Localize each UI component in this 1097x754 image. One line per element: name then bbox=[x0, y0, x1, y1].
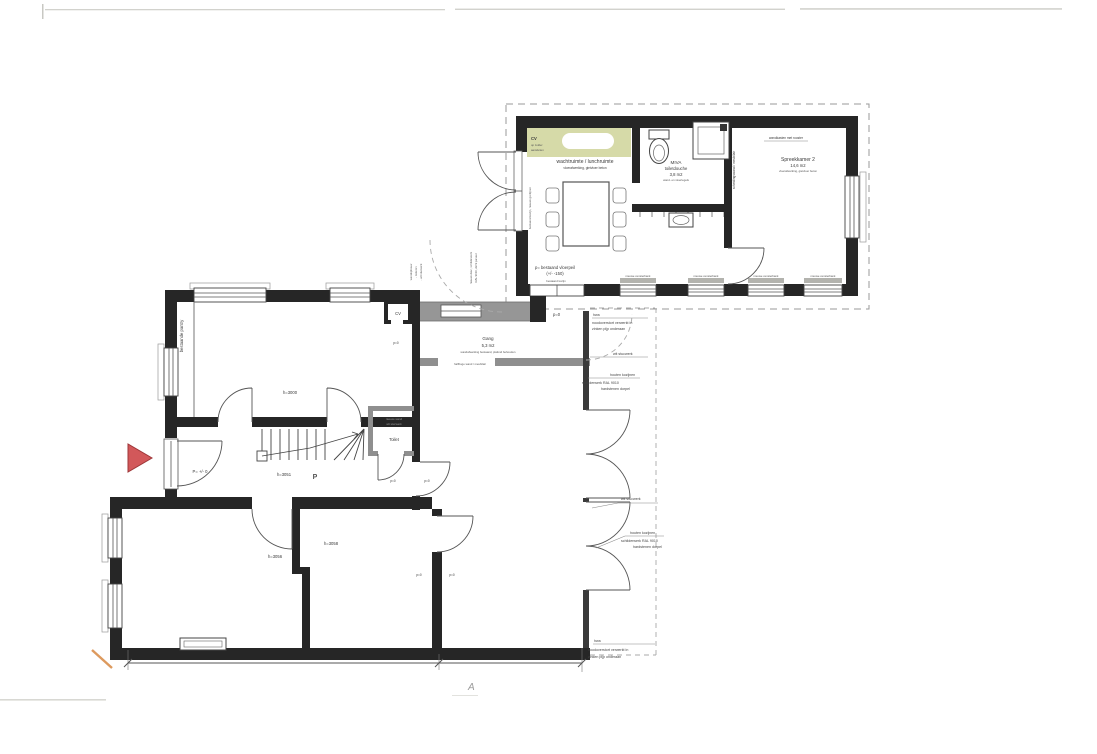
annex-building: CV op zolder aansluiten bbox=[478, 116, 866, 317]
shower-fixture bbox=[693, 122, 729, 159]
sill-note-4: nieuwe vensterbank bbox=[811, 274, 836, 278]
waiting-room-spec: vloerafwerking, gietvloer beton bbox=[563, 166, 606, 170]
stucco-note-bottom: wit stucwerk bbox=[592, 497, 658, 508]
level-zero-lower-left: p=0 bbox=[416, 573, 422, 577]
annex-cv-line1: op zolder bbox=[531, 143, 543, 147]
courtyard-door-swing bbox=[430, 240, 502, 312]
main-house: CV nieuwe wand wit stucwerk Toilet bbox=[102, 283, 632, 660]
washbasin-fixture bbox=[669, 213, 693, 227]
svg-text:hardstenen dorpel: hardstenen dorpel bbox=[633, 545, 662, 549]
level-zero-room: p=0 bbox=[424, 479, 430, 483]
garden-wall-doors bbox=[583, 311, 632, 648]
svg-text:houten kozijnen: houten kozijnen bbox=[630, 531, 655, 535]
existing-frame-note: bestaand kozijn bbox=[546, 279, 566, 283]
annex-cv-zone: CV op zolder aansluiten bbox=[527, 128, 631, 157]
svg-text:houten kozijnen: houten kozijnen bbox=[610, 373, 635, 377]
floorplan-scan: CV op zolder aansluiten bbox=[0, 0, 1097, 754]
height-3058-label: h=3058 bbox=[324, 541, 339, 546]
toilet-note-line2: wit stucwerk bbox=[386, 422, 402, 426]
cv-closet-label: CV bbox=[395, 311, 401, 316]
floor-plan-drawing: CV op zolder aansluiten bbox=[0, 0, 1097, 754]
floor-level-note-line2: (+/- -150) bbox=[546, 271, 564, 276]
toilet-fixture bbox=[649, 130, 669, 164]
dashed-boundaries bbox=[506, 104, 869, 656]
svg-text:- isoleren: - isoleren bbox=[414, 266, 418, 278]
annex-entry-doors bbox=[478, 151, 522, 231]
lunch-table bbox=[563, 182, 609, 246]
stair-letter: P bbox=[313, 474, 318, 481]
height-3000-label: h=3000 bbox=[283, 390, 298, 395]
gang-area: 5,3 m2 bbox=[482, 343, 495, 348]
svg-text:schilderwerk RAL 9010: schilderwerk RAL 9010 bbox=[582, 381, 619, 385]
gang-spec: wandafwerking bestaand, plafond behouden bbox=[461, 350, 516, 354]
consult-room-area: 14,6 m2 bbox=[790, 163, 806, 168]
frames-note-bottom: houten kozijnen schilderwerk RAL 9010 ha… bbox=[596, 531, 664, 549]
level-zero-lower-right: p=0 bbox=[449, 573, 455, 577]
cv-closet: CV bbox=[386, 302, 410, 325]
low-wall-note: halfhoge wand / meubilair bbox=[454, 362, 486, 366]
svg-text:zinken pijp onderaan: zinken pijp onderaan bbox=[592, 327, 625, 331]
sill-note-1: nieuwe vensterbank bbox=[626, 274, 651, 278]
svg-text:noodoverstort verwerkt in: noodoverstort verwerkt in bbox=[588, 648, 628, 652]
radiator bbox=[180, 638, 226, 650]
miva-room-spec: wand- en vloertegels bbox=[663, 178, 689, 182]
miva-room-label: MIVA bbox=[671, 160, 683, 165]
annex-window-note: bestaand kozijn, nieuwe gordijnen bbox=[528, 186, 532, 229]
floor-level-note-line1: p= bestaand vloerpeil bbox=[535, 265, 575, 270]
annex-cv-title: CV bbox=[531, 136, 537, 141]
svg-text:hwa: hwa bbox=[593, 313, 600, 317]
partition-note: scheidingswand / meubilair bbox=[732, 150, 736, 189]
orange-scan-mark bbox=[92, 650, 112, 668]
link-door-note: nieuwe deur, schilderwerk RAL 9010, dich… bbox=[469, 251, 478, 284]
section-letter: A bbox=[467, 682, 475, 693]
sill-note-2: nieuwe vensterbank bbox=[694, 274, 719, 278]
height-3056-label: h=3056 bbox=[268, 554, 283, 559]
cabinet-note: wandkasten met rooster bbox=[769, 136, 804, 140]
svg-text:hwa: hwa bbox=[594, 639, 601, 643]
pantry-note: bestaande pantry bbox=[179, 319, 184, 352]
svg-text:wit stucwerk: wit stucwerk bbox=[613, 352, 633, 356]
stucco-note-top: wit stucwerk bbox=[590, 352, 648, 357]
svg-text:noodoverstort verwerkt in: noodoverstort verwerkt in bbox=[592, 321, 632, 325]
height-3051-label: h=3051 bbox=[277, 472, 292, 477]
svg-text:hardstenen dorpel: hardstenen dorpel bbox=[601, 387, 630, 391]
staircase bbox=[257, 429, 364, 461]
annex-level-zero: p=0 bbox=[553, 312, 561, 317]
annex-cv-line2: aansluiten bbox=[531, 148, 544, 152]
hwa-note-bottom: hwa noodoverstort verwerkt in zinken pij… bbox=[588, 639, 655, 659]
entry-level-label: P= +/- 0 bbox=[193, 469, 209, 474]
svg-text:wandopbouw: wandopbouw bbox=[409, 263, 413, 280]
svg-text:schilderwerk RAL 9010: schilderwerk RAL 9010 bbox=[621, 539, 658, 543]
annex-link-door bbox=[530, 285, 584, 296]
miva-room-area: 3,8 m2 bbox=[670, 172, 683, 177]
waiting-room-label: wachtruimte / lunchruimte bbox=[557, 159, 614, 165]
front-entry: P= +/- 0 bbox=[128, 439, 222, 489]
consult-room-spec: vloerafwerking, gietvloer beton bbox=[779, 169, 817, 173]
svg-text:nieuwe deur, schilderwerk: nieuwe deur, schilderwerk bbox=[469, 251, 473, 284]
miva-room-sublabel: toiletdouche bbox=[665, 166, 688, 171]
level-zero-hall: p=0 bbox=[390, 479, 396, 483]
toilet-label: Toilet bbox=[389, 437, 400, 442]
link-wall-note: wandopbouw - isoleren - wit stucwerk bbox=[409, 263, 423, 281]
entrance-arrow bbox=[128, 444, 152, 472]
level-zero-cv: p=0 bbox=[393, 341, 399, 345]
frames-note-top: houten kozijnen schilderwerk RAL 9010 ha… bbox=[582, 373, 640, 391]
toilet-note-line1: nieuwe wand bbox=[386, 417, 403, 421]
facade-notes: hwa noodoverstort verwerkt in zinken pij… bbox=[582, 313, 664, 659]
interior-doors bbox=[218, 388, 473, 552]
gang-label: Gang bbox=[482, 336, 494, 341]
svg-text:zinken pijp onderaan: zinken pijp onderaan bbox=[588, 655, 621, 659]
sill-note-3: nieuwe vensterbank bbox=[754, 274, 779, 278]
svg-text:wit stucwerk: wit stucwerk bbox=[621, 497, 641, 501]
svg-text:- wit stucwerk: - wit stucwerk bbox=[419, 263, 423, 281]
svg-text:RAL 9010, dicht paneel: RAL 9010, dicht paneel bbox=[474, 253, 478, 282]
hwa-note-top: hwa noodoverstort verwerkt in zinken pij… bbox=[592, 313, 648, 331]
